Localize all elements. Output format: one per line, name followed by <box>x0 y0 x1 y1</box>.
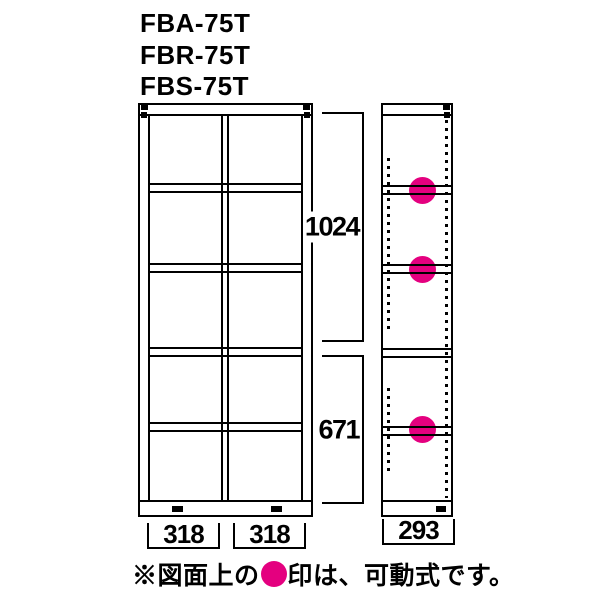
note-text-prefix: ※図面上の <box>132 556 260 592</box>
front-corner-mark-tr2 <box>304 112 310 118</box>
side-shelf-1-movable <box>383 185 451 195</box>
furniture-dimension-diagram: FBA-75T FBR-75T FBS-75T <box>0 0 600 600</box>
dimension-width-left: 318 <box>163 523 203 545</box>
front-foot-right <box>271 506 282 512</box>
front-view-drawing <box>138 103 313 517</box>
movable-shelf-note: ※図面上の 印は、可動式です。 <box>132 556 515 592</box>
dimension-depth: 293 <box>398 519 438 541</box>
dimension-bracket-upper: 1024 <box>322 112 364 342</box>
side-corner-mark-tr <box>443 105 450 110</box>
front-corner-mark-tl2 <box>141 112 147 118</box>
shelf-pin-holes-right <box>445 120 448 498</box>
dimension-bracket-width-right: 318 <box>233 523 306 549</box>
shelf-pin-holes-left <box>387 158 390 330</box>
dimension-bracket-depth: 293 <box>382 519 455 545</box>
note-text-suffix: 印は、可動式です。 <box>288 556 515 592</box>
side-view-drawing <box>381 103 453 517</box>
model-number-list: FBA-75T FBR-75T FBS-75T <box>140 8 250 103</box>
front-bottom-panel-line <box>140 500 311 502</box>
front-corner-mark-tl <box>141 105 148 110</box>
pink-dot-legend-icon <box>261 561 287 587</box>
front-center-divider <box>221 114 229 502</box>
dimension-width-right: 318 <box>249 523 289 545</box>
dimension-bracket-width-left: 318 <box>147 523 220 549</box>
side-shelf-3-fixed <box>383 348 451 358</box>
model-number-2: FBR-75T <box>140 40 250 72</box>
model-number-3: FBS-75T <box>140 71 250 103</box>
side-shelf-2-movable <box>383 264 451 274</box>
front-shelf-1 <box>148 183 303 193</box>
side-corner-mark-tr2 <box>444 112 450 118</box>
front-shelf-2 <box>148 263 303 273</box>
side-foot <box>436 506 446 512</box>
side-bottom-panel-line <box>383 500 451 502</box>
front-corner-mark-tr <box>303 105 310 110</box>
front-foot-left <box>172 506 183 512</box>
dimension-lower-height: 671 <box>316 414 359 445</box>
front-shelf-3-fixed <box>148 347 303 357</box>
dimension-upper-height: 1024 <box>303 212 359 243</box>
front-shelf-4 <box>148 422 303 432</box>
model-number-1: FBA-75T <box>140 8 250 40</box>
dimension-bracket-lower: 671 <box>322 355 364 504</box>
front-left-panel-line <box>148 114 150 502</box>
front-right-panel-line <box>301 114 303 502</box>
side-shelf-4-movable <box>383 426 451 436</box>
side-top-panel-line <box>383 114 451 116</box>
